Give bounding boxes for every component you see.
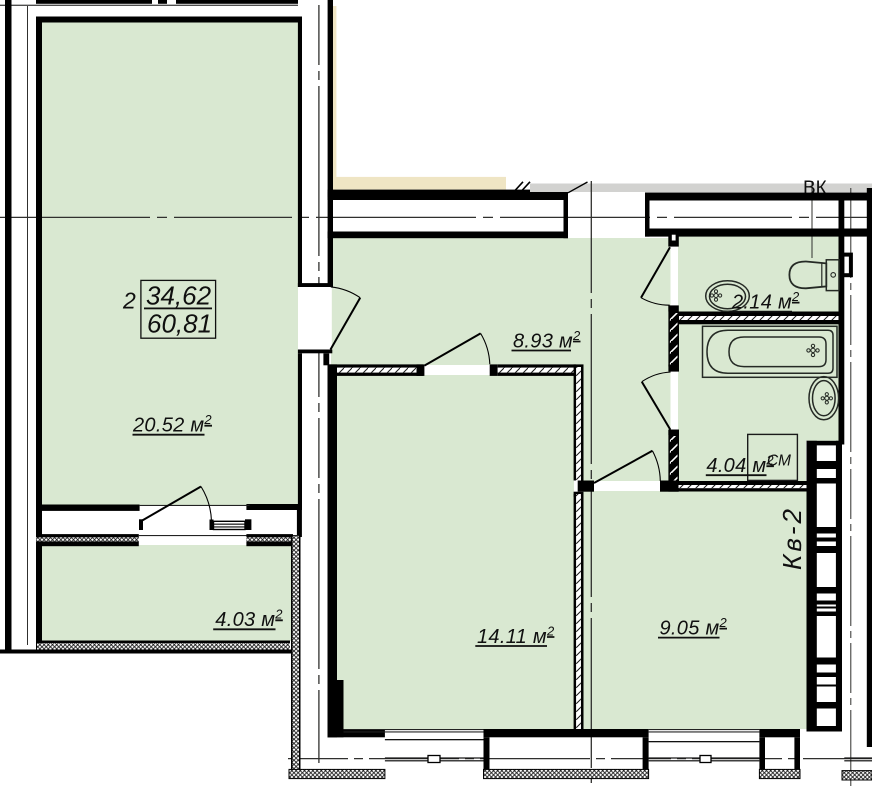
svg-text:СМ: СМ	[767, 453, 791, 470]
svg-text:60,81: 60,81	[147, 309, 212, 339]
svg-text:Кв-2: Кв-2	[777, 506, 807, 570]
svg-text:2: 2	[122, 288, 136, 314]
svg-text:8.93 м2: 8.93 м2	[513, 328, 581, 353]
svg-text:14.11 м2: 14.11 м2	[477, 623, 555, 648]
svg-text:4.03 м2: 4.03 м2	[215, 607, 283, 632]
svg-text:4.04 м2: 4.04 м2	[706, 453, 774, 478]
svg-text:34,62: 34,62	[146, 281, 212, 311]
svg-text:20.52 м2: 20.52 м2	[132, 412, 212, 437]
svg-text:2.14 м2: 2.14 м2	[731, 289, 800, 314]
svg-text:9.05 м2: 9.05 м2	[660, 615, 728, 640]
